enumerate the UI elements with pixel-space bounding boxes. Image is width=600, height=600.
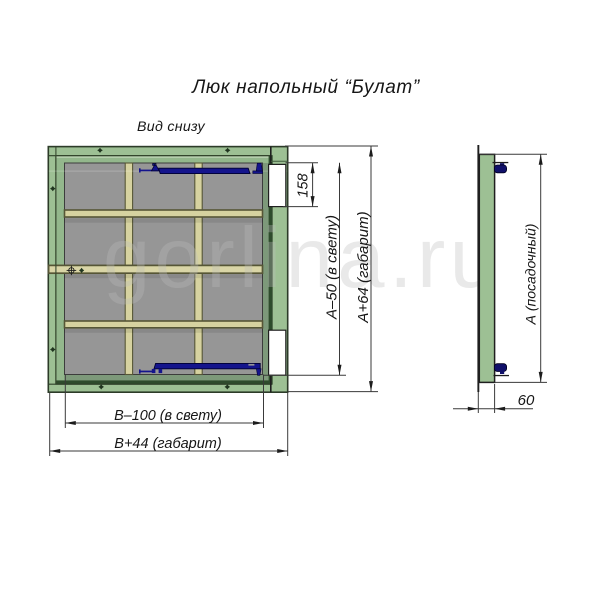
svg-text:gorlina.ru: gorlina.ru bbox=[103, 211, 501, 306]
svg-text:60: 60 bbox=[518, 392, 535, 409]
svg-text:А (посадочный): А (посадочный) bbox=[523, 224, 539, 326]
svg-text:В+44 (габарит): В+44 (габарит) bbox=[114, 436, 221, 452]
svg-text:Люк напольный “Булат”: Люк напольный “Булат” bbox=[190, 77, 421, 98]
svg-text:В–100 (в свету): В–100 (в свету) bbox=[114, 408, 222, 424]
svg-text:Вид снизу: Вид снизу bbox=[137, 119, 205, 135]
svg-text:А–50 (в свету): А–50 (в свету) bbox=[324, 215, 341, 320]
svg-text:А+64 (габарит): А+64 (габарит) bbox=[355, 211, 372, 323]
svg-text:158: 158 bbox=[296, 173, 312, 197]
